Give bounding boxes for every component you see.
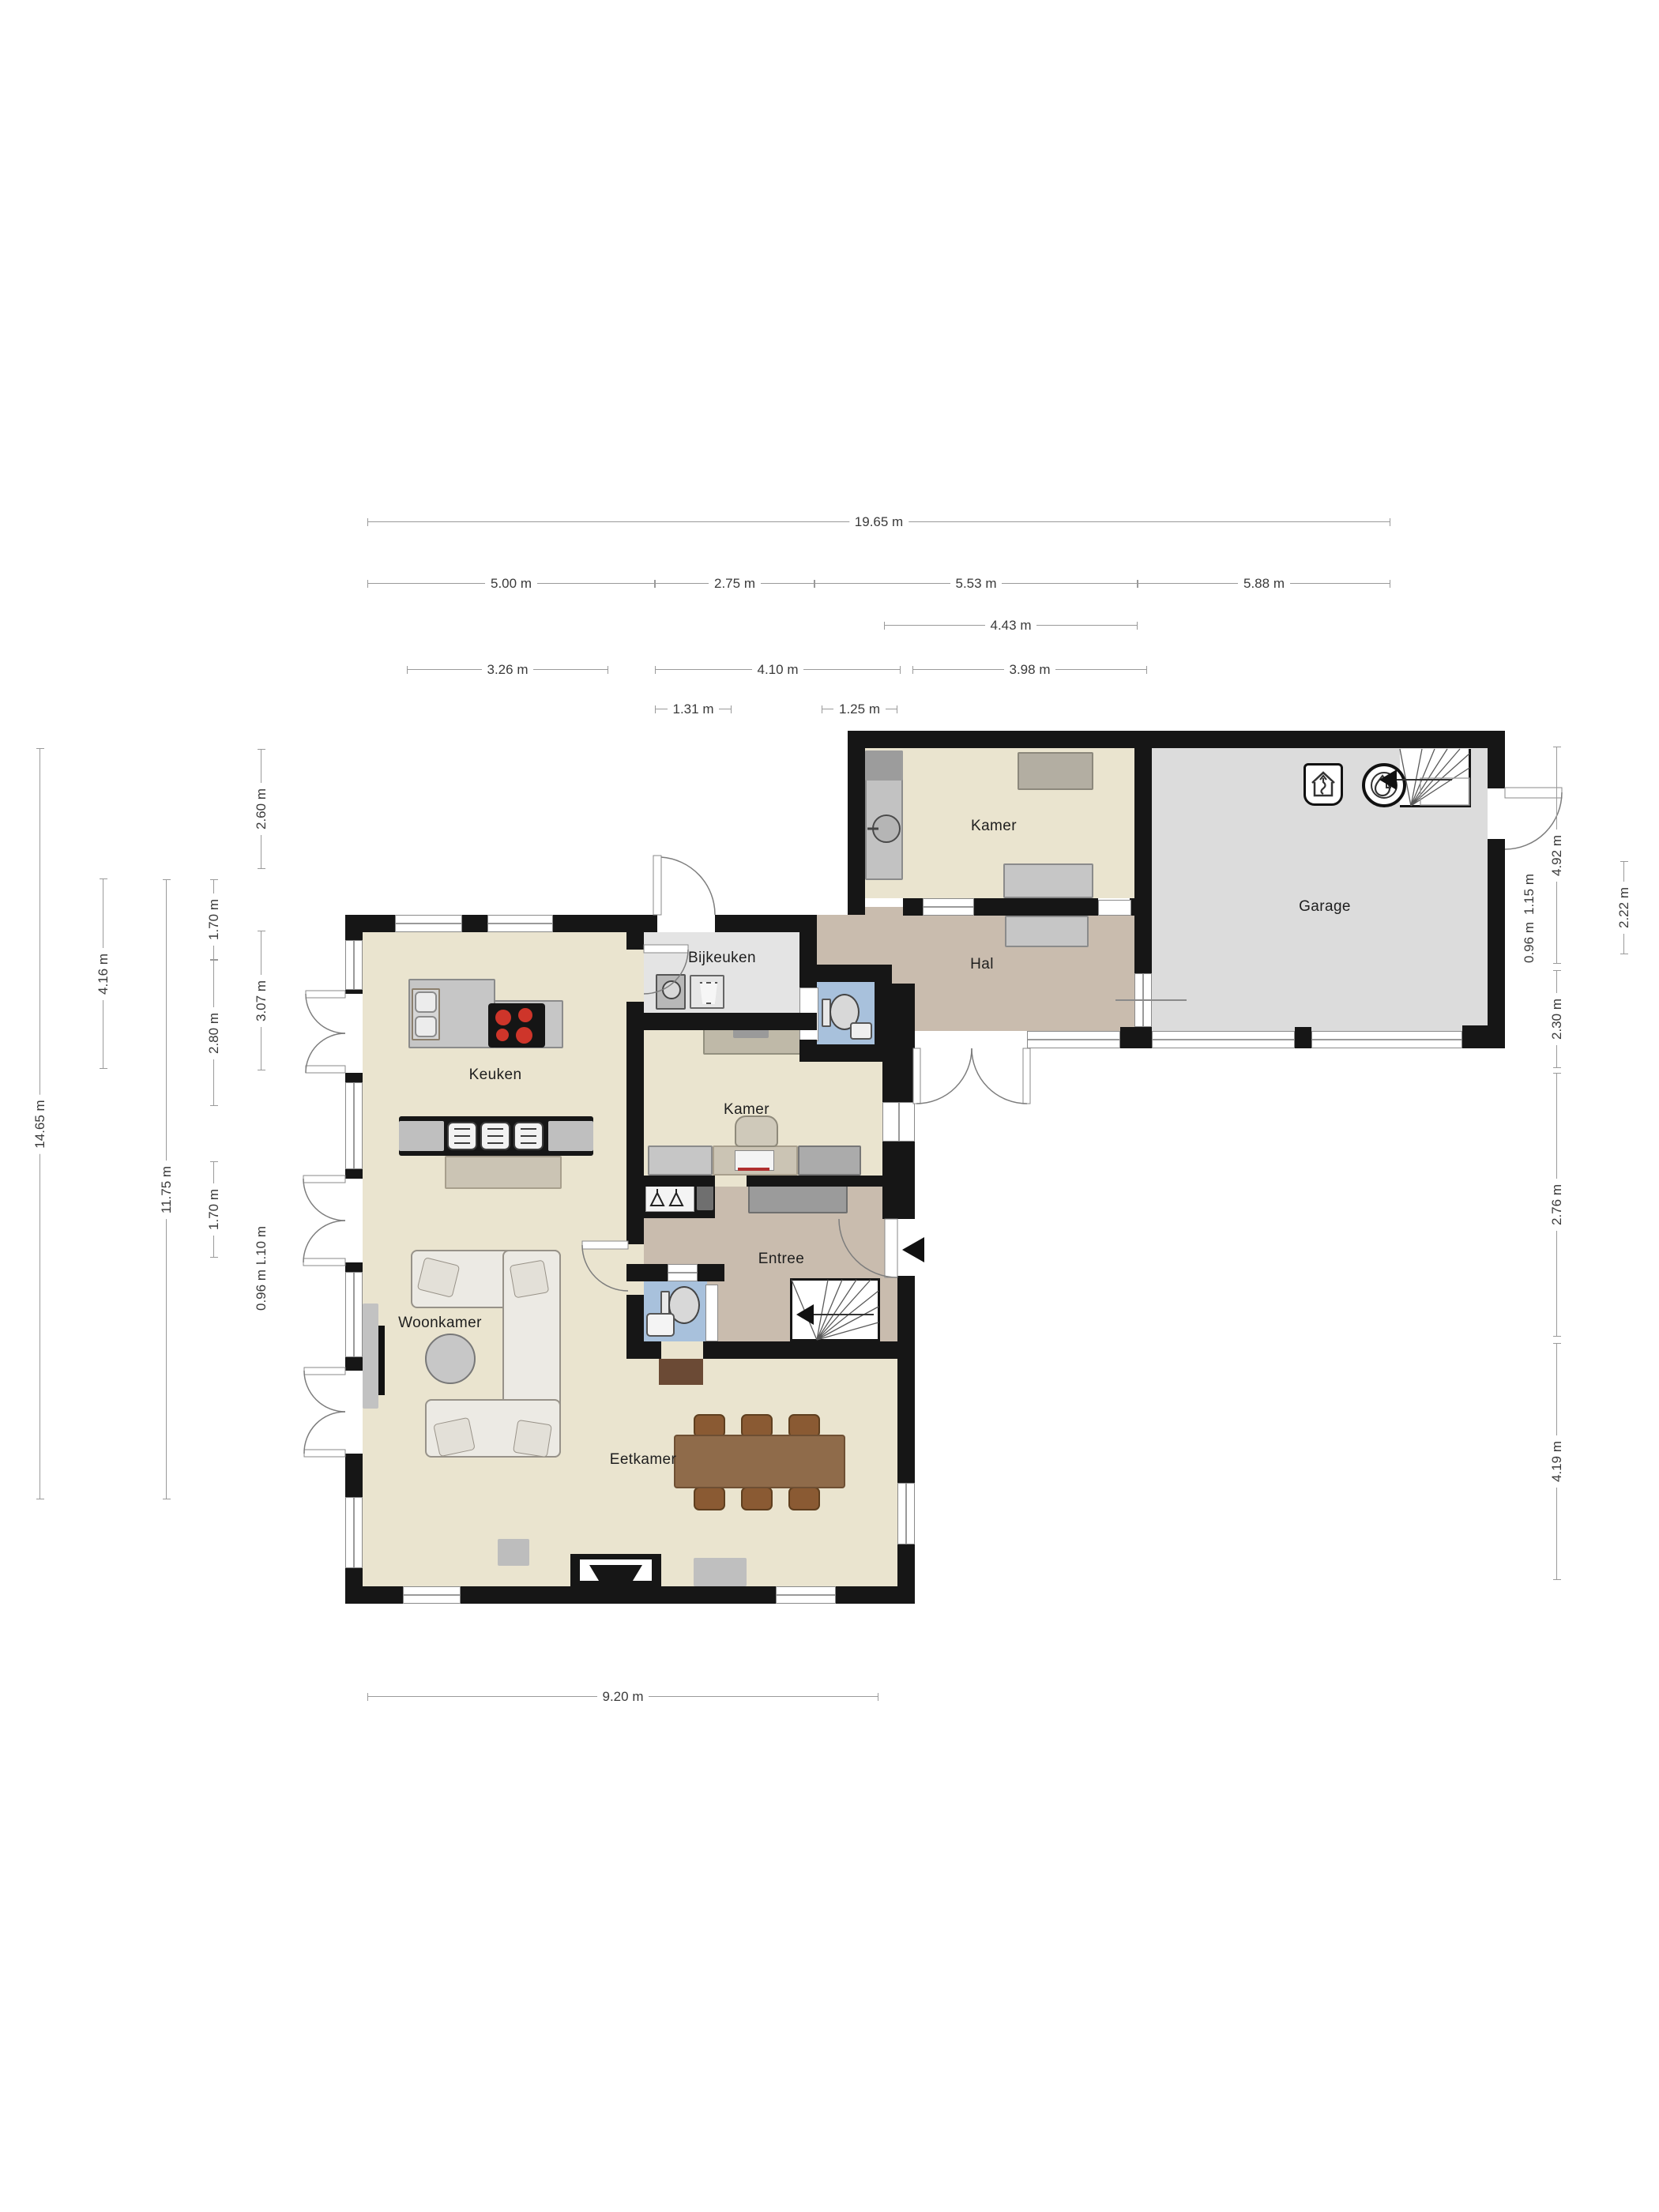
window — [776, 1586, 836, 1604]
sofa-pillow — [510, 1259, 550, 1298]
wall — [817, 1044, 892, 1062]
room-label-woonkamer: Woonkamer — [398, 1315, 482, 1332]
dim-seg: 2.60 m — [261, 749, 261, 869]
wing-desk — [1003, 863, 1093, 898]
wall — [345, 1357, 363, 1371]
wall — [698, 1264, 724, 1281]
wall — [848, 731, 1505, 748]
staircase-entree — [790, 1278, 880, 1341]
wall — [626, 1176, 715, 1187]
island-table — [445, 1156, 562, 1189]
interior-window-bathroom — [668, 1264, 698, 1281]
wall — [345, 1454, 363, 1497]
desk-chair — [735, 1115, 778, 1147]
hal-sideboard — [1005, 916, 1089, 947]
built-in-oven — [480, 1122, 510, 1150]
wall — [903, 898, 923, 916]
room-label-eetkamer: Eetkamer — [610, 1451, 677, 1469]
dining-chair — [741, 1487, 773, 1510]
built-in-oven — [513, 1122, 544, 1150]
wall — [799, 915, 817, 987]
burner — [518, 1008, 532, 1022]
wall — [897, 1276, 915, 1483]
window-band-garage-2 — [1311, 1031, 1462, 1048]
dim-seg: 1.70 m — [213, 1161, 214, 1258]
island-cap-left — [399, 1121, 444, 1151]
entree-sideboard — [748, 1185, 848, 1213]
door-leaf-bathroom-entree — [705, 1285, 718, 1341]
room-label-bijkeuken: Bijkeuken — [688, 950, 756, 967]
bottom-wall-cabinet — [694, 1558, 747, 1586]
wall — [345, 1169, 363, 1179]
wall — [1134, 748, 1152, 973]
dim-seg: 4.10 m — [655, 669, 901, 670]
wall — [626, 1013, 817, 1030]
wing-dresser — [1018, 752, 1093, 790]
dining-chair — [694, 1487, 725, 1510]
hal-terrace-double-door — [913, 1048, 1030, 1104]
dim-total-height: 14.65 m — [39, 748, 40, 1499]
sink-hal — [850, 1022, 872, 1040]
window — [395, 915, 462, 932]
dim-seg: 2.75 m — [655, 583, 814, 584]
dim-bottom-width: 9.20 m — [367, 1696, 878, 1697]
wall — [626, 1021, 644, 1244]
dim-seg: 2.22 m — [1623, 861, 1624, 954]
oven-waves-icon — [521, 1128, 536, 1144]
coffee-table — [425, 1334, 476, 1384]
dim-seg: 3.98 m — [912, 669, 1147, 670]
wall — [747, 1176, 897, 1187]
desk-right — [798, 1145, 861, 1176]
dim-seg: 4.92 m — [1556, 747, 1557, 964]
interior-window-kamer-hal — [923, 898, 974, 916]
wall — [345, 1586, 403, 1604]
tv-console — [363, 1303, 378, 1409]
french-doors-woonkamer-2 — [304, 1367, 345, 1457]
window — [345, 1272, 363, 1357]
door-leaf-hal-kamer — [1098, 900, 1131, 916]
wall — [882, 1062, 915, 1102]
oven-waves-icon — [487, 1128, 503, 1144]
dim-seg: 1.31 m — [655, 709, 732, 709]
dim-seg: 11.75 m — [166, 879, 167, 1499]
window — [345, 940, 363, 990]
built-in-oven — [447, 1122, 477, 1150]
dim-seg: 4.19 m — [1556, 1343, 1557, 1580]
dim-seg: 2.30 m — [1556, 970, 1557, 1068]
interior-window-hal-garage — [1134, 973, 1152, 1027]
wall — [553, 915, 657, 932]
wall — [892, 984, 915, 1062]
wall-pier — [1462, 1025, 1505, 1048]
wall — [703, 1341, 897, 1359]
wall — [799, 1040, 817, 1062]
wall — [345, 1073, 363, 1082]
wall — [897, 1544, 915, 1604]
room-label-keuken: Keuken — [469, 1066, 522, 1084]
oven-waves-icon — [454, 1128, 470, 1144]
dim-seg: 5.53 m — [814, 583, 1138, 584]
dim-seg: 5.88 m — [1138, 583, 1390, 584]
dim-seg: 3.07 m — [261, 931, 261, 1070]
window — [897, 1483, 915, 1544]
wall — [345, 1262, 363, 1272]
window — [487, 915, 553, 932]
burner — [495, 1010, 511, 1025]
kitchen-sink-bowl-bottom — [415, 1016, 437, 1037]
room-label-kamer-wing: Kamer — [971, 818, 1017, 835]
window-band-hal — [1027, 1031, 1120, 1048]
dim-seg: 5.00 m — [367, 583, 655, 584]
wall — [848, 731, 865, 915]
window — [345, 1497, 363, 1568]
central-heating-boiler-icon — [1362, 763, 1406, 807]
staircase-garage — [1400, 749, 1471, 807]
french-doors-woonkamer-1 — [303, 1176, 345, 1266]
dim-total-width: 19.65 m — [367, 521, 1390, 522]
room-label-entree: Entree — [758, 1251, 804, 1268]
sofa-pillow — [513, 1420, 552, 1458]
dining-chair — [788, 1487, 820, 1510]
dim-seg: 3.26 m — [407, 669, 608, 670]
floor-plan: Kamer Garage Bijkeuken Hal Keuken Kamer … — [0, 0, 1659, 2212]
french-doors-keuken — [306, 991, 345, 1073]
wall — [626, 1264, 668, 1281]
washbasin — [872, 814, 901, 843]
wall-pier — [1120, 1027, 1152, 1048]
wardrobe-cabinet — [865, 750, 903, 781]
wall — [1488, 839, 1505, 1031]
window — [403, 1586, 461, 1604]
wall — [626, 1341, 661, 1359]
washing-machine-drum — [662, 980, 681, 999]
wall — [345, 990, 363, 994]
coat-closet — [645, 1183, 694, 1212]
dim-seg: 0.96 m — [261, 1273, 261, 1306]
desk-left — [648, 1145, 713, 1176]
dim-seg: 1.70 m — [213, 879, 214, 960]
room-label-kamer-mid: Kamer — [724, 1101, 769, 1119]
side-table — [498, 1539, 529, 1566]
dim-seg: 0.96 m — [1529, 920, 1529, 964]
burner — [516, 1027, 532, 1044]
dim-seg: 1.15 m — [1529, 869, 1529, 919]
island-cap-right — [548, 1121, 593, 1151]
window — [882, 1102, 915, 1142]
window-band-garage-1 — [1152, 1031, 1295, 1048]
cooktop — [488, 1003, 545, 1048]
laptop-keyboard — [738, 1168, 769, 1171]
dim-seg: 1.25 m — [822, 709, 897, 709]
wall — [461, 1586, 776, 1604]
dim-seg: 4.16 m — [103, 878, 103, 1069]
room-label-garage: Garage — [1299, 898, 1351, 916]
window — [345, 1082, 363, 1169]
room-label-hal: Hal — [970, 956, 994, 973]
wall — [345, 915, 363, 940]
tv-screen — [378, 1326, 385, 1395]
dining-table — [674, 1435, 845, 1488]
kitchen-sink-bowl-top — [415, 991, 437, 1013]
wall-pier — [1295, 1027, 1311, 1048]
dim-seg: 2.80 m — [213, 960, 214, 1106]
closet-cabinet — [697, 1183, 713, 1210]
wall — [974, 898, 1098, 916]
wall — [626, 1295, 644, 1341]
wall — [1488, 731, 1505, 788]
door-bijkeuken-exterior — [653, 856, 715, 915]
burner — [496, 1029, 509, 1041]
doormat — [659, 1359, 703, 1385]
wall — [626, 932, 644, 950]
mechanical-ventilation-icon — [1303, 763, 1343, 806]
wall — [462, 915, 487, 932]
dim-seg: 4.43 m — [884, 625, 1138, 626]
entrance-arrow-icon — [902, 1237, 924, 1262]
sink-entree — [646, 1313, 675, 1337]
dim-seg: 2.76 m — [1556, 1073, 1557, 1337]
